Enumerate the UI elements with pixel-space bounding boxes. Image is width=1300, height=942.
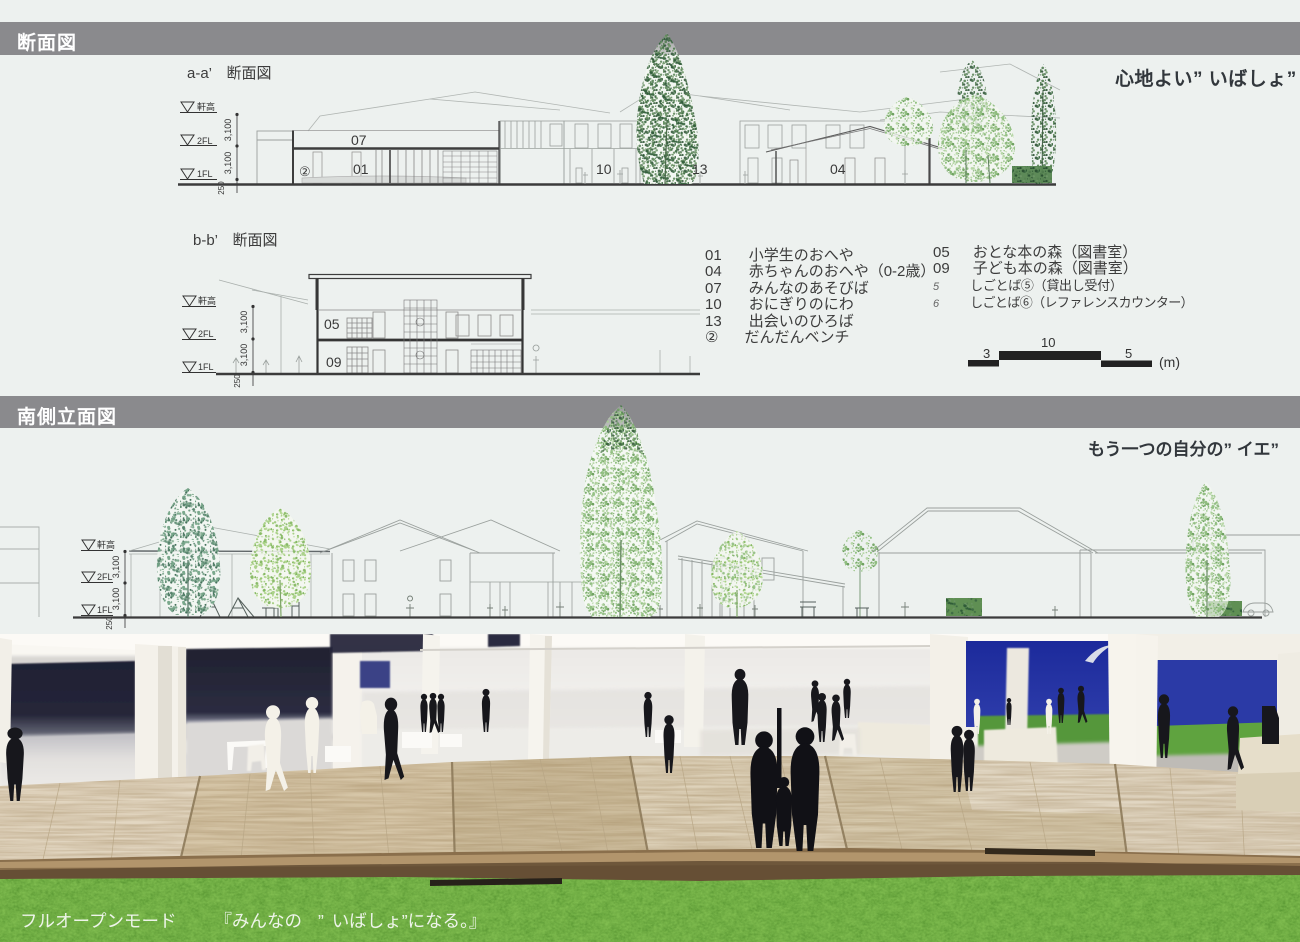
svg-text:3,100: 3,100 (239, 311, 249, 334)
svg-text:1FL: 1FL (198, 362, 214, 372)
svg-text:軒高: 軒高 (197, 101, 215, 112)
svg-text:13: 13 (692, 161, 708, 177)
svg-text:5: 5 (1125, 346, 1132, 361)
svg-text:2FL: 2FL (198, 329, 214, 339)
svg-text:3,100: 3,100 (239, 344, 249, 367)
svg-text:3,100: 3,100 (111, 588, 121, 611)
svg-text:軒高: 軒高 (198, 295, 216, 306)
svg-text:09: 09 (326, 354, 342, 370)
svg-text:(m): (m) (1159, 354, 1180, 370)
svg-text:1FL: 1FL (197, 169, 213, 179)
svg-text:250: 250 (233, 374, 242, 388)
svg-text:04: 04 (830, 161, 846, 177)
svg-text:250: 250 (217, 181, 226, 195)
svg-text:10: 10 (596, 161, 612, 177)
svg-text:2FL: 2FL (197, 136, 213, 146)
svg-text:3,100: 3,100 (223, 119, 233, 142)
svg-text:10: 10 (1041, 335, 1055, 350)
svg-text:②: ② (299, 164, 311, 179)
svg-text:軒高: 軒高 (97, 539, 115, 550)
svg-text:3,100: 3,100 (111, 556, 121, 579)
svg-text:05: 05 (324, 316, 340, 332)
svg-text:3,100: 3,100 (223, 152, 233, 175)
svg-text:3: 3 (983, 346, 990, 361)
svg-text:01: 01 (353, 161, 369, 177)
svg-text:07: 07 (351, 132, 367, 148)
